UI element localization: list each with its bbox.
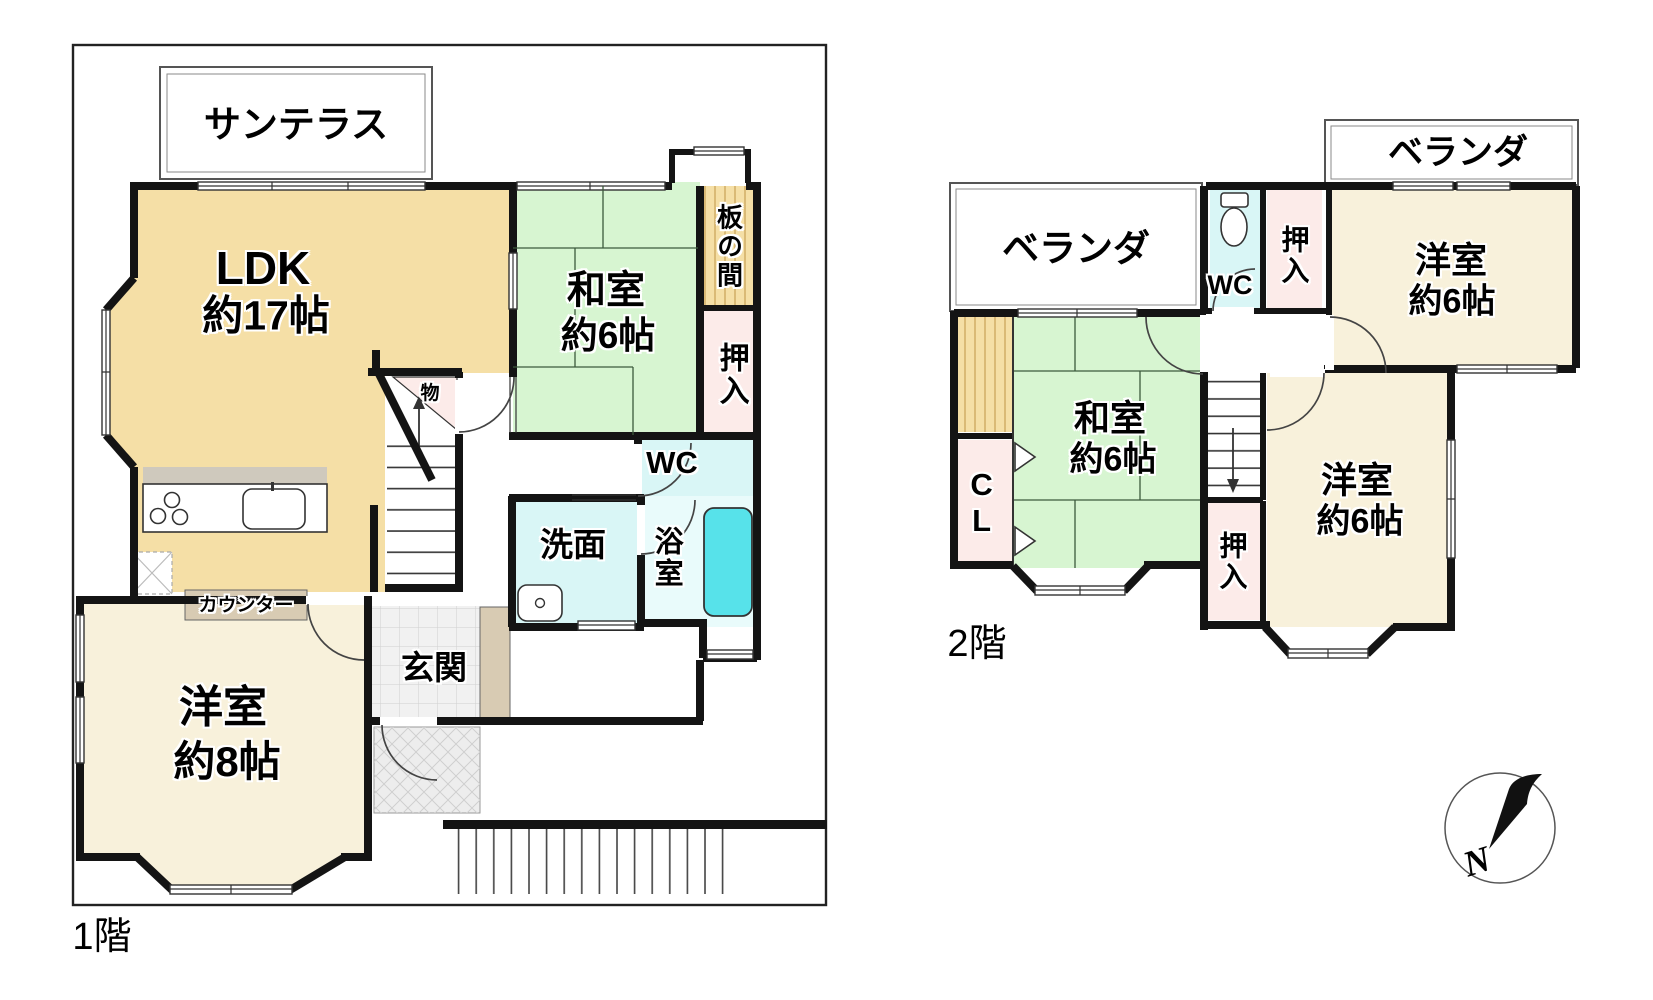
label-oshiire-1f: 押入: [715, 342, 746, 408]
label-oshiire-2f-bottom: 押入: [1217, 531, 1246, 593]
label-youshitsu-1f-size: 約8帖: [173, 740, 280, 784]
label-yokushitsu: 浴室: [651, 526, 681, 590]
label-youshitsu-ne-size: 約6帖: [1409, 284, 1496, 319]
label-veranda-right: ベランダ: [1388, 135, 1528, 171]
label-sun-terrace: サンテラス: [204, 106, 388, 144]
label-cl: CL: [965, 467, 997, 539]
bathtub-icon: [704, 508, 752, 616]
label-counter: カウンター: [198, 596, 293, 616]
label-washitsu-1f-size: 約6帖: [561, 317, 656, 355]
label-wc-2f: WC: [1208, 271, 1253, 299]
label-floor1: 1階: [72, 918, 131, 958]
label-wc-1f: WC: [646, 447, 698, 479]
label-washitsu-1f: 和室: [567, 272, 645, 313]
floor2-plan: [950, 120, 1578, 658]
label-ldk: LDK: [216, 245, 311, 293]
label-mono: 物: [420, 384, 439, 404]
label-floor2: 2階: [947, 625, 1006, 665]
label-veranda-left: ベランダ: [1002, 230, 1150, 268]
label-ldk-size: 約17帖: [202, 295, 330, 338]
stairs-2f: [1208, 378, 1262, 498]
kitchen-counter: [143, 467, 327, 532]
label-youshitsu-se: 洋室: [1321, 461, 1393, 498]
sink-icon: [518, 585, 562, 621]
label-washitsu-2f: 和室: [1074, 399, 1146, 436]
label-itanoma: 板の間: [714, 204, 741, 291]
label-senmen: 洗面: [540, 528, 606, 562]
label-oshiire-2f-top: 押入: [1279, 225, 1308, 287]
floor-plan-page: サンテラス LDK 約17帖 和室 約6帖 板の間 押入 WC 洗面 浴室 玄関…: [0, 0, 1653, 1000]
label-youshitsu-1f: 洋室: [179, 685, 267, 731]
strip-itanoma-2f: [955, 317, 1013, 432]
label-genkan: 玄関: [401, 651, 467, 685]
deck-steps: [443, 820, 827, 894]
label-youshitsu-ne: 洋室: [1415, 241, 1487, 278]
label-washitsu-2f-size: 約6帖: [1070, 442, 1157, 477]
stairs-1f: [387, 396, 457, 588]
compass-rose: [1445, 773, 1555, 883]
faucet-icon: [271, 482, 274, 491]
label-youshitsu-se-size: 約6帖: [1317, 504, 1404, 539]
toilet-icon: [1221, 193, 1248, 246]
porch-tiles: [374, 727, 480, 813]
